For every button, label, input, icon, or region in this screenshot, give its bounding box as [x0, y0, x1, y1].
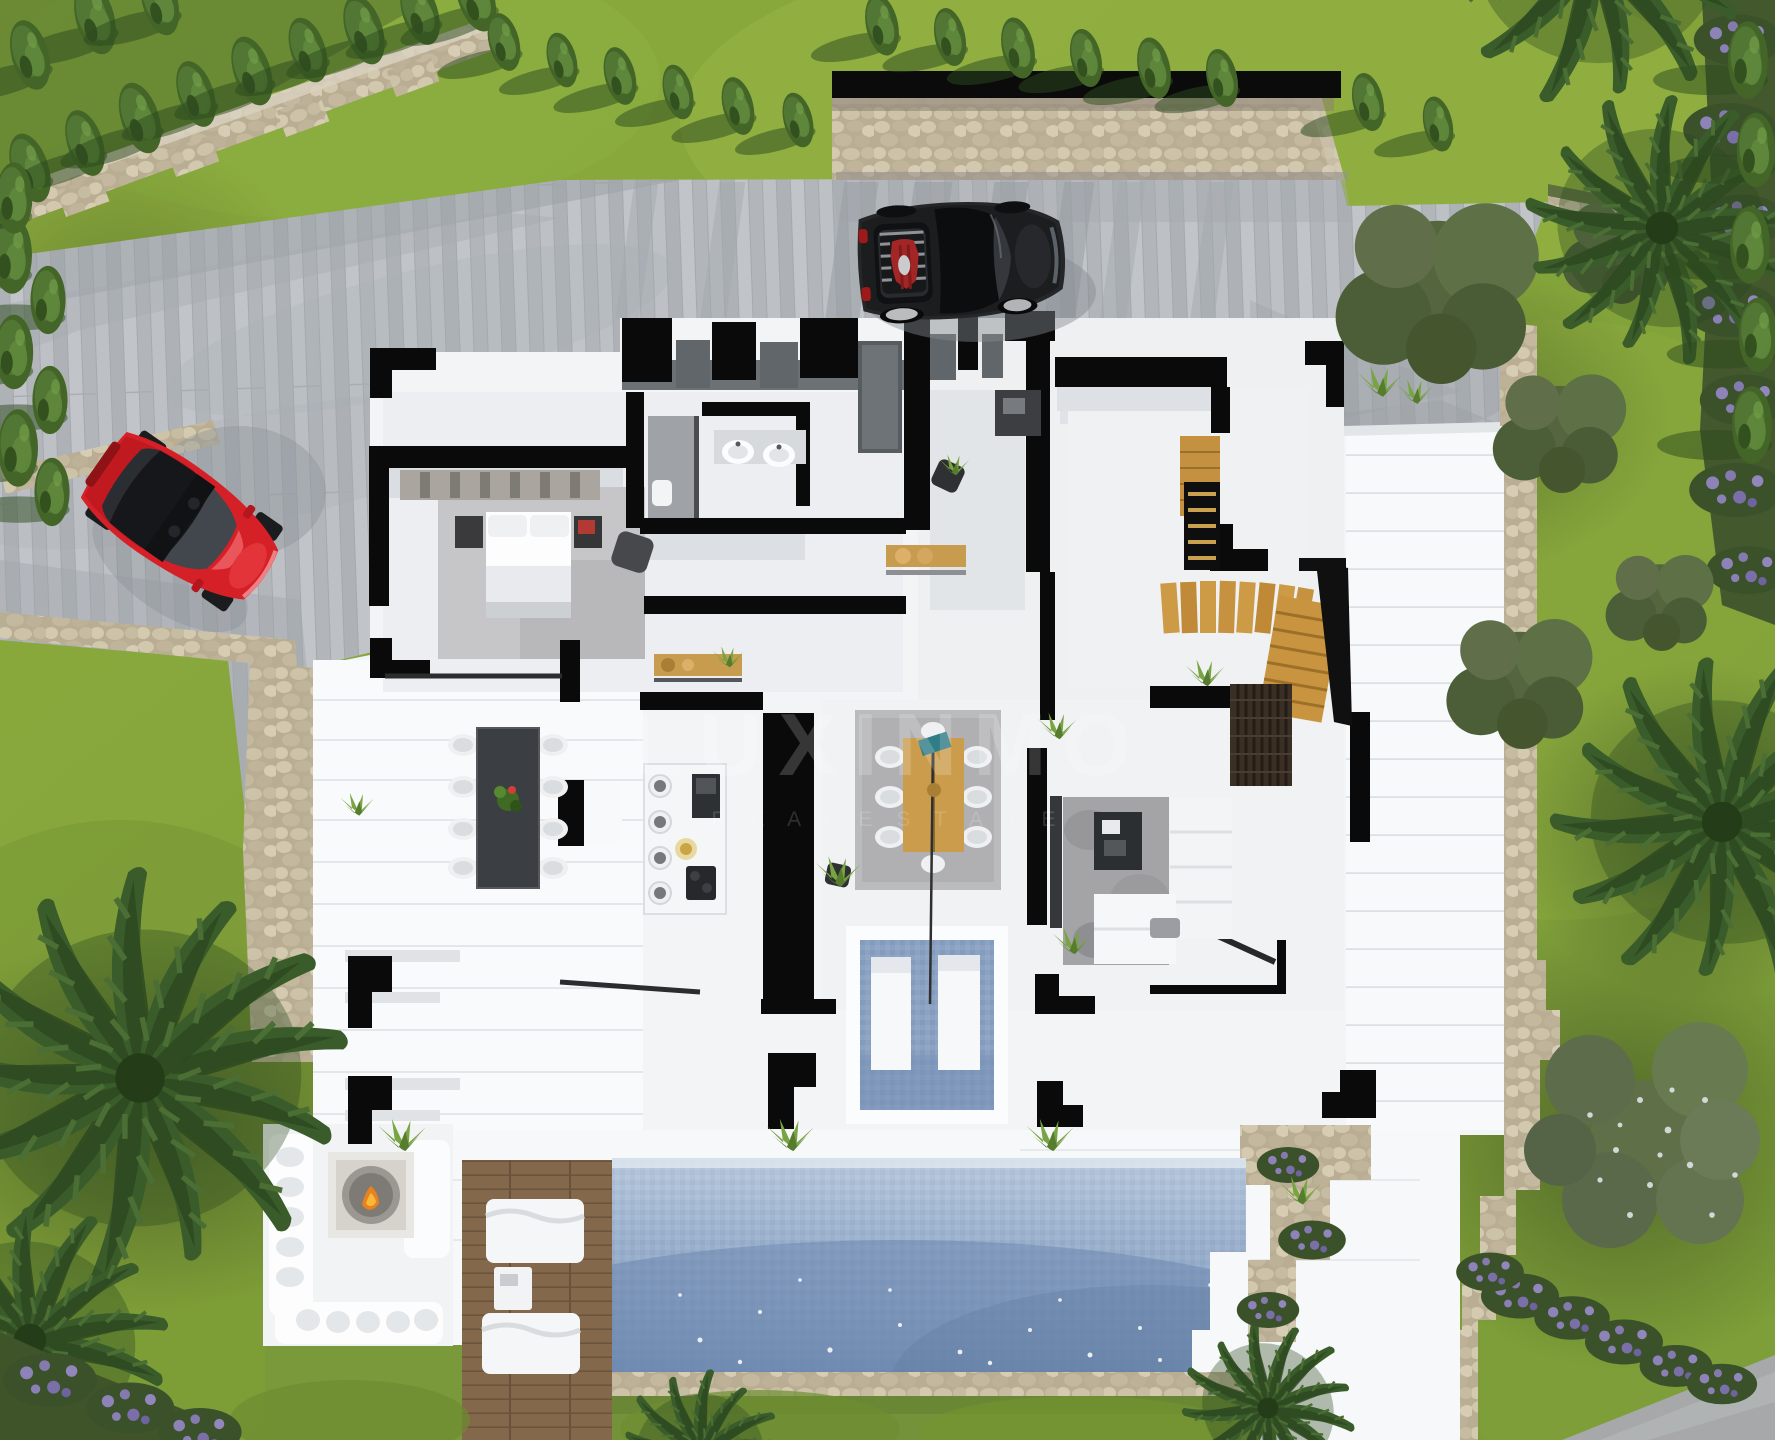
svg-text:LUXINMO: LUXINMO — [629, 695, 1147, 794]
svg-text:R E A L E S T A T E: R E A L E S T A T E — [711, 808, 1064, 831]
